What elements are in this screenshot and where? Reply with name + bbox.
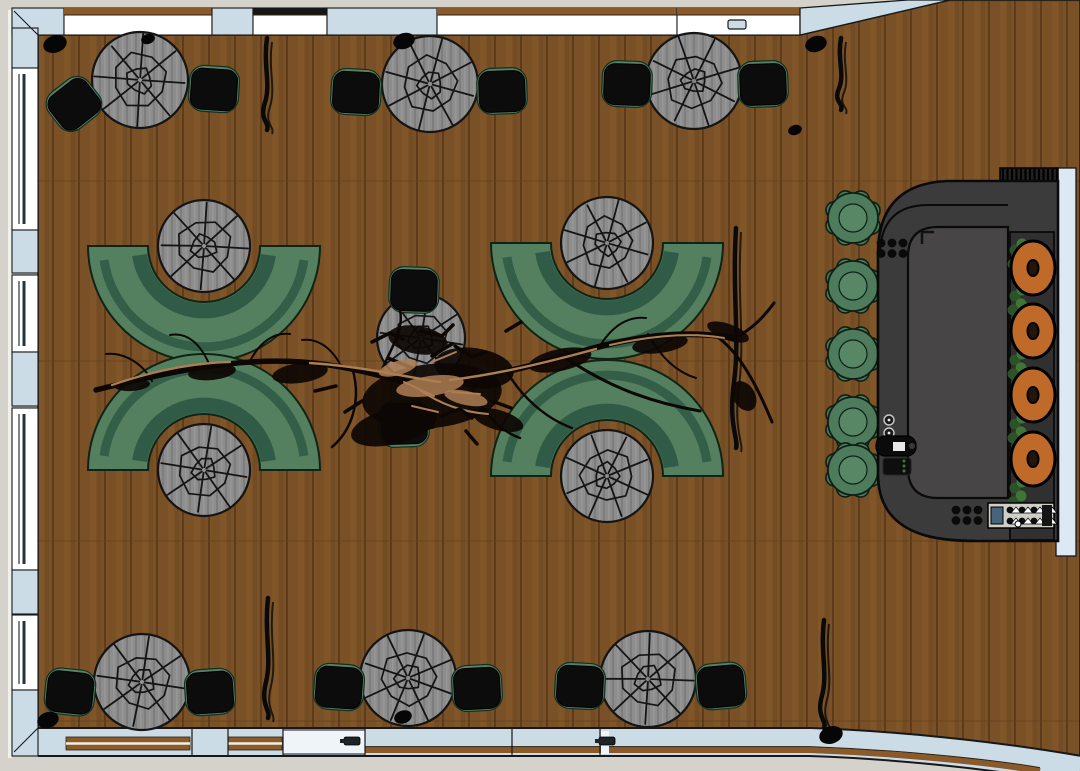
dining-chair[interactable] xyxy=(601,60,653,108)
orange-ring-decor[interactable] xyxy=(1011,368,1055,422)
chair-seat xyxy=(603,63,650,106)
tray-dot xyxy=(903,470,906,473)
ring-hole xyxy=(1028,387,1039,403)
window-lintel xyxy=(437,8,677,15)
dining-chair[interactable] xyxy=(694,661,748,711)
chair-seat xyxy=(556,665,604,708)
counter-dots xyxy=(899,239,908,248)
chair-seat xyxy=(315,665,364,709)
ring-hole xyxy=(1028,260,1039,276)
counter-dots xyxy=(952,516,961,525)
table-top xyxy=(94,634,190,730)
table-top xyxy=(561,430,653,522)
round-table[interactable] xyxy=(92,32,188,128)
chair-seat xyxy=(390,269,437,312)
dining-chair[interactable] xyxy=(183,667,236,716)
counter-dots xyxy=(899,249,908,258)
orange-ring-decor[interactable] xyxy=(1011,241,1055,295)
round-table[interactable] xyxy=(94,634,190,730)
dining-chair[interactable] xyxy=(737,60,789,108)
table-top xyxy=(561,197,653,289)
left-wall-segment xyxy=(12,570,38,614)
chair-seat xyxy=(453,667,501,710)
table-top xyxy=(158,424,250,516)
door-handle[interactable] xyxy=(728,20,746,29)
door-handle[interactable] xyxy=(344,737,360,745)
ring-hole xyxy=(1028,323,1039,339)
chair-seat xyxy=(332,71,380,114)
orange-ring-decor[interactable] xyxy=(1011,432,1055,486)
equipment-block xyxy=(1042,505,1052,526)
table-top xyxy=(92,32,188,128)
ring-hole xyxy=(1028,451,1039,467)
dining-chair[interactable] xyxy=(554,662,606,711)
chair-seat xyxy=(45,670,95,716)
chair-seat xyxy=(186,670,235,714)
table-plank-seam xyxy=(161,245,201,246)
knob-dot xyxy=(888,432,891,435)
round-table[interactable] xyxy=(561,430,653,522)
door-handle[interactable] xyxy=(599,737,615,745)
stool-cushion xyxy=(839,204,867,232)
exterior-curb xyxy=(8,10,12,758)
stool-cushion xyxy=(839,272,867,300)
dining-chair[interactable] xyxy=(312,662,365,711)
machine-display xyxy=(893,442,905,451)
door-handle-stem xyxy=(595,739,600,743)
window-lintel xyxy=(677,8,800,15)
round-table[interactable] xyxy=(158,424,250,516)
chair-seat xyxy=(739,63,786,106)
dining-chair[interactable] xyxy=(451,664,503,713)
top-wall-segment xyxy=(212,8,253,35)
equipment-screen xyxy=(991,507,1003,524)
top-wall-segment xyxy=(327,8,437,35)
dining-chair[interactable] xyxy=(330,68,382,117)
dining-chair[interactable] xyxy=(187,64,240,113)
dining-chair[interactable] xyxy=(476,67,528,115)
counter-dots xyxy=(974,516,983,525)
counter-dots xyxy=(888,249,897,258)
stool-cushion xyxy=(839,340,867,368)
window-lintel xyxy=(253,8,327,15)
round-table[interactable] xyxy=(561,197,653,289)
restaurant-floor-plan xyxy=(0,0,1080,771)
table-top xyxy=(382,36,478,132)
chair-seat xyxy=(478,70,525,113)
window-lintel xyxy=(64,8,212,15)
stool-cushion xyxy=(839,456,867,484)
left-wall-segment xyxy=(12,352,38,406)
chair-seat xyxy=(190,67,239,111)
stool-cushion xyxy=(839,408,867,436)
round-table[interactable] xyxy=(382,36,478,132)
counter-dots xyxy=(963,516,972,525)
counter-dots xyxy=(974,506,983,515)
left-wall-segment xyxy=(12,230,38,273)
round-table[interactable] xyxy=(600,631,696,727)
tray-dot xyxy=(903,465,906,468)
counter-dots xyxy=(877,239,886,248)
orange-ring-decor[interactable] xyxy=(1011,304,1055,358)
round-table[interactable] xyxy=(646,33,742,129)
dining-chair[interactable] xyxy=(43,667,98,718)
left-wall-segment xyxy=(12,28,38,68)
chair-seat xyxy=(696,664,745,709)
counter-dots xyxy=(888,239,897,248)
machine-button[interactable] xyxy=(909,443,915,449)
door-handle-stem xyxy=(340,739,345,743)
left-wall-segment xyxy=(12,690,38,756)
service-tray xyxy=(883,458,911,475)
table-top xyxy=(646,33,742,129)
tray-dot xyxy=(903,460,906,463)
counter-dots xyxy=(952,506,961,515)
counter-dots xyxy=(877,249,886,258)
round-table[interactable] xyxy=(158,200,250,292)
knob-dot xyxy=(888,419,891,422)
floor-plan-canvas xyxy=(0,0,1080,771)
bar-inner-counter xyxy=(908,227,1008,498)
counter-dots xyxy=(963,506,972,515)
gauge-dot xyxy=(1015,521,1021,527)
bar-layer xyxy=(826,168,1058,541)
dining-chair[interactable] xyxy=(388,266,440,314)
